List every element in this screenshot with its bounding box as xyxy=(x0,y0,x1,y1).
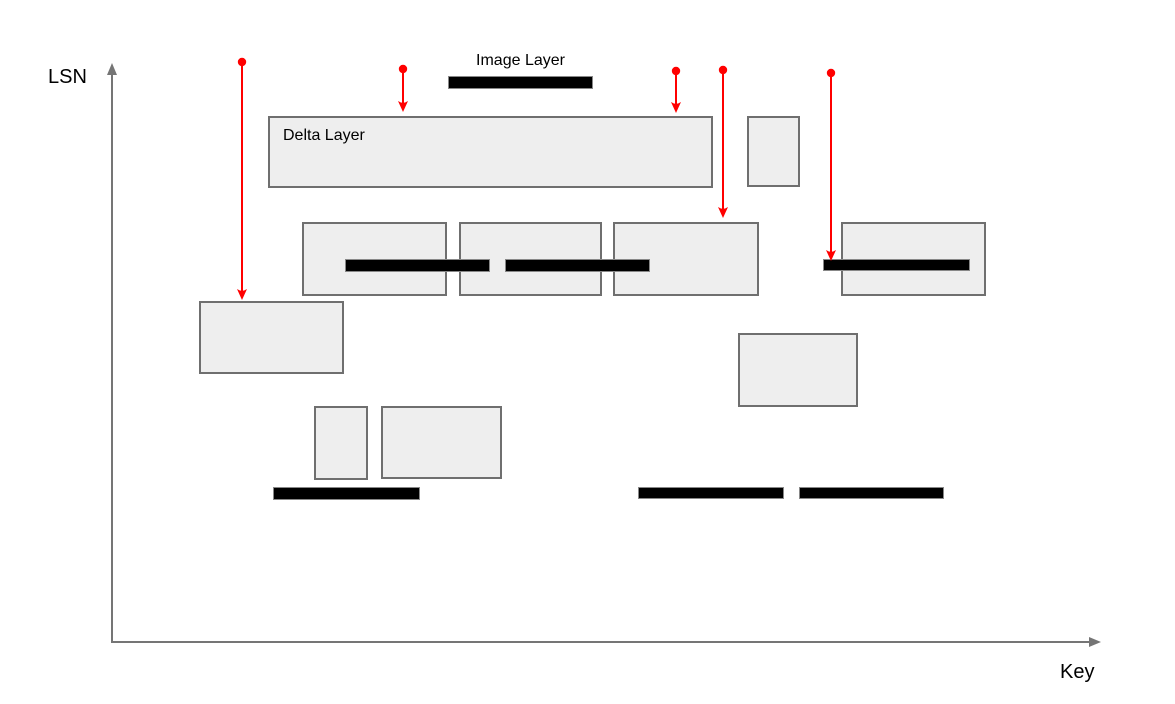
delta-layer-rect xyxy=(738,333,858,407)
delta-layer-rect xyxy=(747,116,800,187)
arrow-origin-dot-icon xyxy=(827,69,835,77)
image-layer-legend-label: Image Layer xyxy=(448,52,593,70)
delta-layer-rect xyxy=(199,301,344,374)
y-axis-label: LSN xyxy=(48,67,87,87)
delta-layer-rect xyxy=(381,406,502,479)
delta-layer-rect xyxy=(314,406,368,480)
lsn-read-arrow xyxy=(824,69,838,261)
delta-layer-label: Delta Layer xyxy=(270,118,711,145)
arrow-origin-dot-icon xyxy=(238,58,246,66)
lsn-read-arrow xyxy=(396,65,410,112)
arrow-origin-dot-icon xyxy=(399,65,407,73)
image-layer-bar xyxy=(638,487,784,499)
y-axis-arrowhead-icon xyxy=(107,63,117,75)
lsn-read-arrow xyxy=(716,66,730,218)
x-axis-arrowhead-icon xyxy=(1089,637,1101,647)
diagram-canvas: LSN Key Image Layer Delta Layer xyxy=(0,0,1175,704)
arrow-origin-dot-icon xyxy=(672,67,680,75)
image-layer-bar xyxy=(823,259,970,271)
delta-layer-rect: Delta Layer xyxy=(268,116,713,188)
image-layer-bar xyxy=(505,259,650,272)
y-axis-line xyxy=(111,74,113,642)
arrow-origin-dot-icon xyxy=(719,66,727,74)
lsn-read-arrow xyxy=(669,67,683,113)
image-layer-bar xyxy=(345,259,490,272)
lsn-read-arrow xyxy=(235,58,249,300)
x-axis-label: Key xyxy=(1060,662,1094,682)
x-axis-line xyxy=(111,641,1097,643)
image-layer-legend-bar xyxy=(448,76,593,89)
image-layer-bar xyxy=(799,487,944,499)
image-layer-bar xyxy=(273,487,420,500)
